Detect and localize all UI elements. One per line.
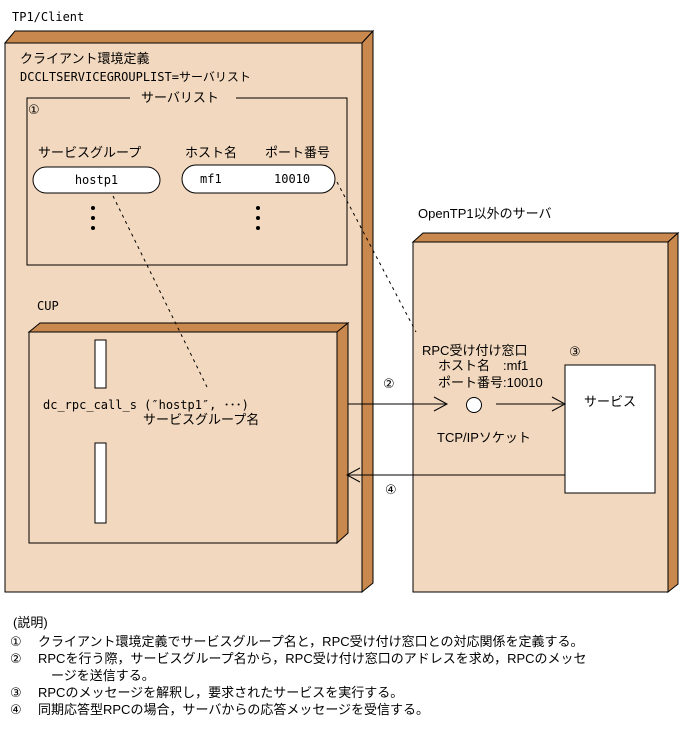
cup-call-line: dc_rpc_call_s (″hostp1″, ･･･) (43, 398, 249, 412)
rpc-window-port: ポート番号:10010 (438, 376, 543, 390)
note-4-text: 同期応答型RPCの場合，サーバからの応答メッセージを受信する。 (38, 703, 429, 717)
client-box-title: TP1/Client (12, 10, 84, 24)
server-list-title: サーバリスト (141, 91, 219, 105)
marker-2-icon: ② (383, 377, 395, 391)
column-host-name: ホスト名 (185, 146, 237, 160)
host-value: mf1 (200, 172, 222, 186)
marker-3-icon: ③ (569, 345, 581, 359)
note-3-marker-icon: ③ (10, 686, 22, 700)
note-1-marker-icon: ① (10, 635, 22, 649)
service-box (565, 365, 655, 493)
cup-label: CUP (37, 299, 59, 313)
code-slot-top (95, 340, 106, 388)
service-group-value: hostp1 (33, 173, 160, 187)
note-2-text: RPCを行う際，サービスグループ名から，RPC受け付け窓口のアドレスを求め，RP… (38, 652, 587, 666)
note-2-marker-icon: ② (10, 652, 22, 666)
cup-call-annotation: サービスグループ名 (143, 413, 259, 427)
socket-circle (467, 398, 482, 413)
client-env-def-line2: DCCLTSERVICEGROUPLIST=サーバリスト (20, 70, 251, 84)
service-label: サービス (565, 395, 655, 409)
diagram-shapes (0, 0, 681, 738)
column-port-number: ポート番号 (265, 146, 330, 160)
note-1-text: クライアント環境定義でサービスグループ名と，RPC受け付け窓口との対応関係を定義… (38, 635, 584, 649)
server-box-title: OpenTP1以外のサーバ (418, 207, 552, 221)
port-value: 10010 (274, 172, 310, 186)
notes-heading: (説明) (13, 616, 48, 630)
marker-4-icon: ④ (385, 483, 397, 497)
diagram-canvas: TP1/Client クライアント環境定義 DCCLTSERVICEGROUPL… (0, 0, 681, 738)
socket-label: TCP/IPソケット (437, 431, 531, 445)
code-slot-bottom (95, 443, 106, 523)
note-4-marker-icon: ④ (10, 703, 22, 717)
rpc-window-host: ホスト名 :mf1 (438, 359, 528, 373)
marker-1-icon: ① (28, 103, 40, 117)
server-box (413, 233, 678, 592)
client-env-def-line1: クライアント環境定義 (20, 52, 149, 66)
column-service-group: サービスグループ (38, 146, 141, 160)
rpc-window-label: RPC受け付け窓口 (422, 344, 527, 358)
note-2-text-continued: ージを送信する。 (51, 669, 155, 683)
note-3-text: RPCのメッセージを解釈し，要求されたサービスを実行する。 (38, 686, 403, 700)
cup-box (29, 323, 348, 543)
